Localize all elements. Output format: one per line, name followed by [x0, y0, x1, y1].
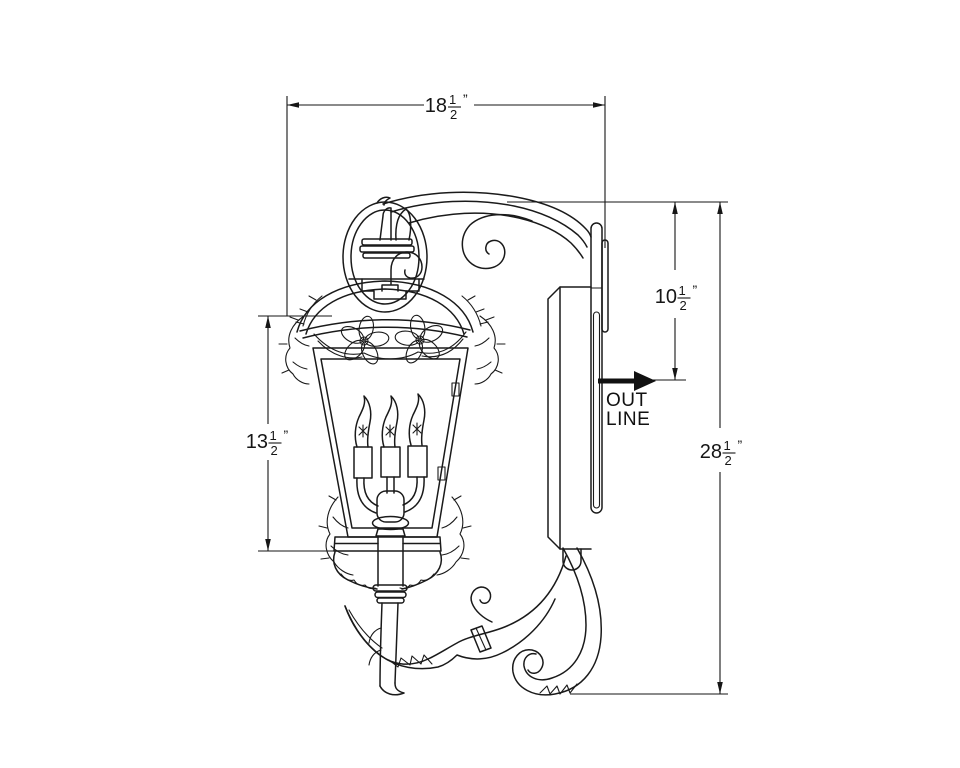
arrowhead-up	[265, 316, 271, 328]
dim-body-denominator: 2	[271, 443, 278, 458]
dim-body-whole: 13	[246, 431, 268, 453]
dim-width-denominator: 2	[450, 107, 457, 122]
dim-body-numerator: 1	[270, 428, 277, 443]
dim-width-unit: ”	[463, 91, 468, 107]
dimension-arm-drop: 10 1 2 ”	[655, 202, 698, 380]
outlet-label-line1: OUT	[606, 390, 648, 411]
lantern-dimension-drawing: 18 1 2 ” 13 1 2 ” 10 1 2 ” 28 1 2 ”	[0, 0, 960, 768]
dim-height-numerator: 1	[724, 438, 731, 453]
dimension-body-height: 13 1 2 ”	[246, 316, 289, 551]
dim-drop-denominator: 2	[680, 298, 687, 313]
leaf-cluster-top-right	[475, 316, 505, 384]
arrowhead-left	[287, 102, 299, 108]
outlet-arrow-icon	[634, 371, 656, 391]
outlet-callout: OUT LINE	[598, 371, 656, 430]
dim-width-numerator: 1	[449, 92, 456, 107]
dim-width-whole: 18	[425, 95, 447, 117]
candles	[354, 394, 427, 478]
dim-height-denominator: 2	[725, 453, 732, 468]
arrowhead-up	[717, 202, 723, 214]
arrowhead-down	[672, 368, 678, 380]
extension-lines	[258, 96, 728, 694]
dimension-overall-height: 28 1 2 ”	[700, 202, 743, 694]
lantern-bottom	[334, 552, 442, 695]
dimension-overall-width: 18 1 2 ”	[287, 91, 605, 122]
arrowhead-up	[672, 202, 678, 214]
dim-height-unit: ”	[738, 437, 743, 453]
garland-swags	[314, 332, 466, 359]
dim-drop-numerator: 1	[679, 283, 686, 298]
lantern-drawing	[279, 192, 608, 695]
dim-body-unit: ”	[284, 427, 289, 443]
arrowhead-down	[717, 682, 723, 694]
arrowhead-right	[593, 102, 605, 108]
leaf-cluster-top-left	[279, 316, 309, 384]
technical-drawing-page: 18 1 2 ” 13 1 2 ” 10 1 2 ” 28 1 2 ”	[0, 0, 960, 768]
dim-drop-whole: 10	[655, 286, 677, 308]
dim-drop-unit: ”	[693, 282, 698, 298]
candelabra	[357, 477, 424, 586]
dim-height-whole: 28	[700, 441, 722, 463]
arrowhead-down	[265, 539, 271, 551]
bottom-scroll-arm	[345, 548, 601, 695]
top-scroll-arm	[383, 192, 591, 268]
wall-mount	[548, 223, 608, 570]
outlet-arrow-shaft	[598, 379, 635, 384]
outlet-label-line2: LINE	[606, 409, 650, 430]
finial-scroll-ring	[343, 197, 427, 312]
crown-dome	[296, 281, 488, 338]
